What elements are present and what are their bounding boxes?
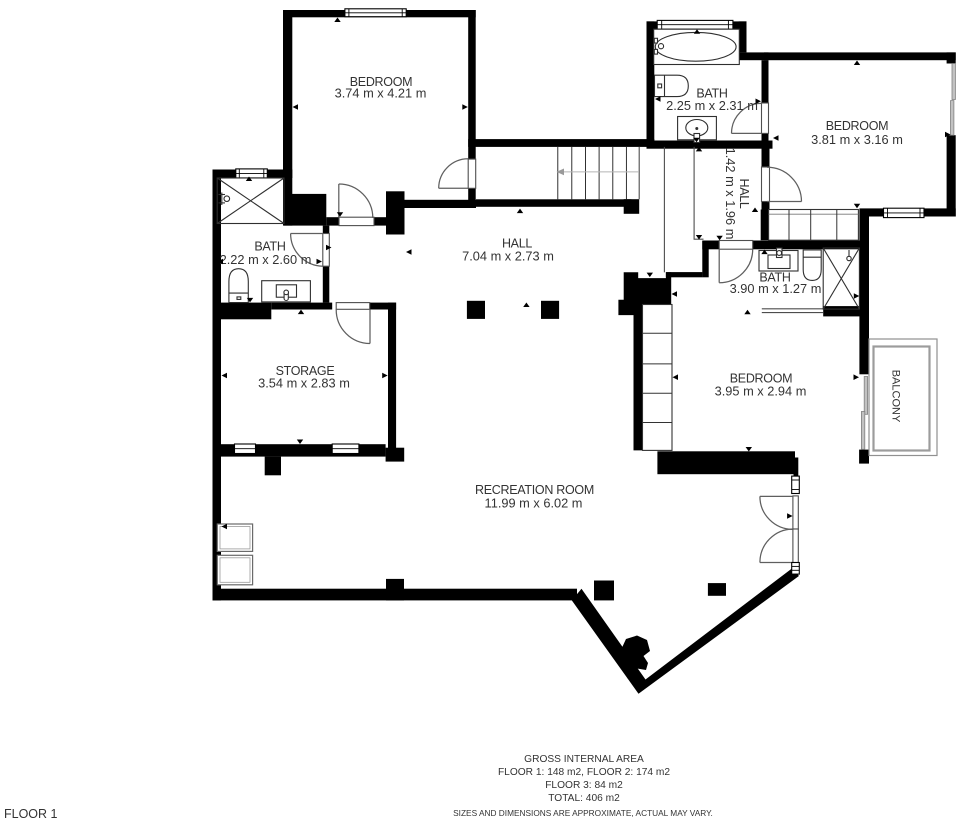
svg-text:7.04 m x 2.73 m: 7.04 m x 2.73 m <box>462 248 554 263</box>
svg-text:GROSS INTERNAL AREA: GROSS INTERNAL AREA <box>524 754 644 765</box>
svg-text:3.95 m x 2.94 m: 3.95 m x 2.94 m <box>715 383 807 398</box>
svg-text:FLOOR 1: FLOOR 1 <box>4 807 58 821</box>
svg-text:BALCONY: BALCONY <box>890 370 902 423</box>
svg-text:2.25 m x 2.31 m: 2.25 m x 2.31 m <box>666 98 758 113</box>
svg-text:3.90 m x 1.27 m: 3.90 m x 1.27 m <box>730 281 822 296</box>
svg-text:3.74 m x 4.21 m: 3.74 m x 4.21 m <box>335 85 427 100</box>
svg-text:BEDROOM: BEDROOM <box>826 119 889 133</box>
svg-text:SIZES AND DIMENSIONS ARE APPRO: SIZES AND DIMENSIONS ARE APPROXIMATE, AC… <box>453 808 713 818</box>
svg-text:3.81 m x 3.16 m: 3.81 m x 3.16 m <box>811 132 903 147</box>
svg-text:3.54 m x 2.83 m: 3.54 m x 2.83 m <box>258 376 350 391</box>
svg-text:HALL: HALL <box>737 178 751 208</box>
svg-text:FLOOR 1: 148 m2, FLOOR 2: 174: FLOOR 1: 148 m2, FLOOR 2: 174 m2 <box>498 767 670 778</box>
svg-text:TOTAL: 406 m2: TOTAL: 406 m2 <box>548 793 620 804</box>
svg-text:11.99 m x 6.02 m: 11.99 m x 6.02 m <box>485 495 583 510</box>
svg-text:1.42 m x 1.96 m: 1.42 m x 1.96 m <box>723 148 738 240</box>
svg-text:2.22 m x 2.60 m: 2.22 m x 2.60 m <box>220 252 312 267</box>
svg-text:FLOOR 3: 84 m2: FLOOR 3: 84 m2 <box>545 780 623 791</box>
